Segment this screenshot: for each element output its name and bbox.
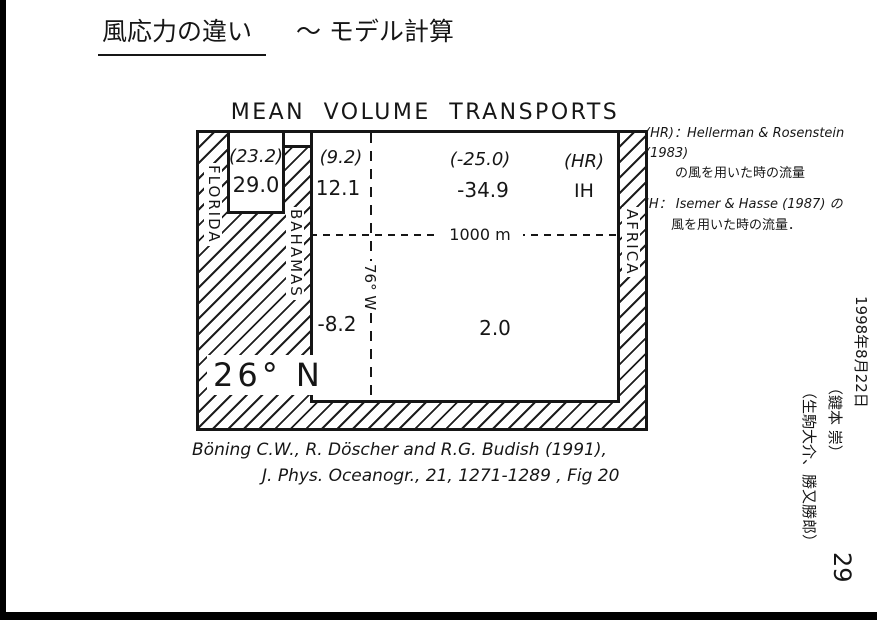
citation: Böning C.W., R. Döscher and R.G. Budish … xyxy=(192,438,619,489)
figure-title: MEAN VOLUME TRANSPORTS xyxy=(230,100,620,125)
heading-underlined-text: 風応力の違い xyxy=(98,12,266,56)
africa-label: AFRICA xyxy=(622,207,640,277)
note-hr-line2: の風を用いた時の流量 xyxy=(645,164,877,184)
scanned-notebook-page: 風応力の違い ～ モデル計算 MEAN VOLUME TRANSPORTS FL… xyxy=(0,0,877,620)
page-number: 29 xyxy=(828,552,856,583)
citation-line2: J. Phys. Oceanogr., 21, 1271-1289 , Fig … xyxy=(192,464,619,490)
bahamas-label: BAHAMAS xyxy=(286,207,304,300)
note-ih-line1: IH： Isemer & Hasse (1987) の xyxy=(645,195,877,215)
bahamas-bank-top-gap xyxy=(285,133,310,148)
scan-edge-bottom xyxy=(0,612,877,620)
legend-ih-label: IH xyxy=(557,180,611,202)
note-ih-line2: 風を用いた時の流量． xyxy=(645,216,877,236)
transport-upper-west-ih: 12.1 xyxy=(312,176,364,200)
margin-note-name2: （生駒大介、勝又勝郎） xyxy=(796,296,822,546)
transport-deep-west: -8.2 xyxy=(311,312,363,336)
margin-note-date: 1998年8月22日 xyxy=(848,296,874,546)
wind-product-note: (HR)：Hellerman & Rosenstein (1983) の風を用い… xyxy=(645,124,877,236)
citation-line1: Böning C.W., R. Döscher and R.G. Budish … xyxy=(192,438,619,464)
florida-label: FLORIDA xyxy=(204,163,222,246)
margin-note-name1: （鍵本 崇） xyxy=(822,296,848,546)
scan-edge-left xyxy=(0,0,6,620)
transport-florida-strait-ih: 29.0 xyxy=(227,173,285,197)
longitude-line-label: 76° W xyxy=(359,261,381,313)
transport-upper-east-ih: -34.9 xyxy=(450,178,516,202)
atlantic-basin xyxy=(310,133,620,403)
note-hr-line1: (HR)：Hellerman & Rosenstein (1983) xyxy=(645,124,877,164)
transport-upper-east-hr: (-25.0) xyxy=(447,149,513,170)
legend-hr-label: (HR) xyxy=(557,151,611,172)
transport-florida-strait-hr: (23.2) xyxy=(227,146,285,167)
latitude-label: 26° N xyxy=(207,355,330,395)
depth-line-label: 1000 m xyxy=(437,225,523,244)
transport-deep-east: 2.0 xyxy=(467,316,523,340)
margin-date-note: 1998年8月22日 （鍵本 崇） （生駒大介、勝又勝郎） xyxy=(796,296,874,546)
transport-upper-west-hr: (9.2) xyxy=(315,147,367,168)
transport-schematic: FLORIDA BAHAMAS AFRICA 1000 m 76° W (23.… xyxy=(196,130,648,431)
heading-suffix-text: ～ モデル計算 xyxy=(296,17,454,46)
handwritten-heading: 風応力の違い ～ モデル計算 xyxy=(98,12,454,56)
